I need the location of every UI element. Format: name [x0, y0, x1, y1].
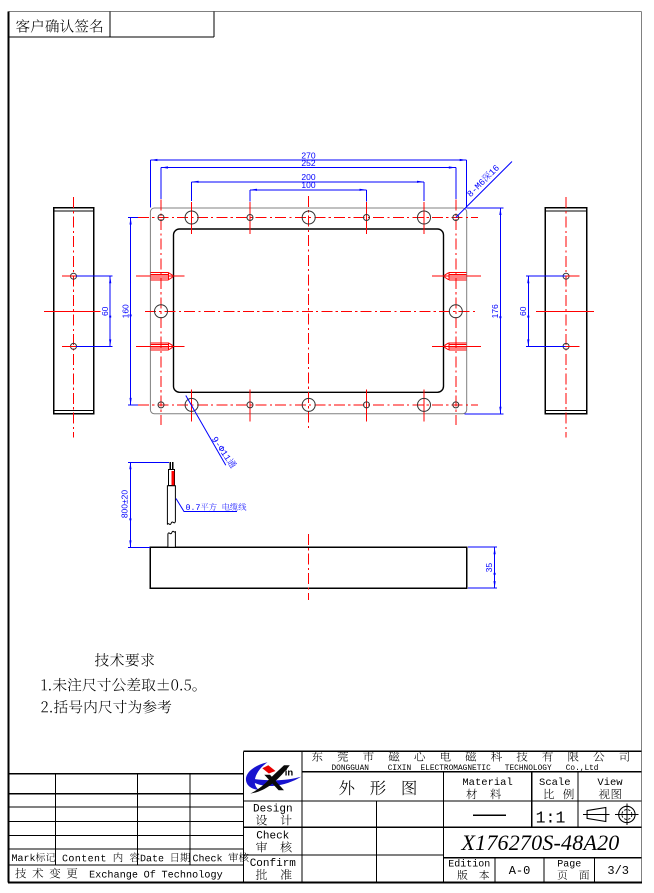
svg-text:Check: Check: [256, 831, 289, 843]
svg-text:252: 252: [301, 158, 315, 168]
svg-text:60: 60: [518, 306, 528, 316]
svg-text:1:1: 1:1: [536, 809, 566, 828]
svg-text:in: in: [285, 768, 294, 779]
svg-text:DONGGUAN CIXIN ELECTROMAGN: DONGGUAN CIXIN ELECTROMAGNETIC TECHNOLOG…: [332, 765, 599, 773]
svg-text:160: 160: [120, 304, 130, 318]
svg-text:Page: Page: [557, 860, 581, 871]
svg-text:View: View: [597, 777, 623, 789]
svg-text:800±20: 800±20: [120, 490, 130, 519]
svg-text:35: 35: [484, 563, 494, 573]
svg-text:Scale: Scale: [539, 777, 571, 789]
svg-text:60: 60: [100, 306, 110, 316]
svg-text:100: 100: [301, 180, 315, 190]
svg-text:176: 176: [490, 304, 500, 318]
svg-text:Material: Material: [462, 777, 512, 789]
svg-text:3/3: 3/3: [607, 864, 629, 878]
svg-text:A-0: A-0: [509, 864, 531, 878]
svg-text:X176270S-48A20: X176270S-48A20: [460, 830, 619, 855]
svg-text:Confirm: Confirm: [250, 858, 297, 870]
svg-text:Design: Design: [253, 804, 293, 816]
svg-text:Edition: Edition: [448, 859, 490, 871]
